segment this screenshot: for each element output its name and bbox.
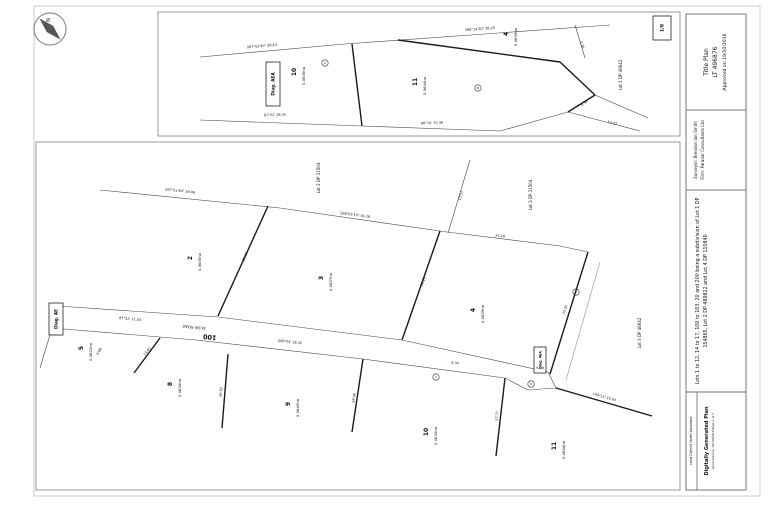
- lot-number: 4: [503, 32, 510, 36]
- title-block-border: [686, 14, 746, 490]
- bearing-label: 38.06: [351, 393, 356, 403]
- boundary-line: [58, 306, 218, 317]
- diagram-ref-label: Diag. AEA: [271, 72, 276, 96]
- boundary-line: [550, 252, 588, 374]
- lot-area: 0.0600ha: [301, 67, 306, 85]
- bearing-label: 13.57: [607, 120, 617, 126]
- boundary-line: [568, 112, 640, 131]
- lot-number: 3: [318, 276, 325, 280]
- bearing-label: 8.34: [451, 361, 459, 366]
- lot-number: 9: [285, 402, 292, 406]
- boundary-line: [134, 338, 160, 373]
- lot-area: 0.0601ha: [88, 343, 93, 361]
- bearing-label: 268°05' 26.35: [278, 339, 302, 346]
- boundary-line: [500, 112, 568, 131]
- bearing-label: 25.35: [562, 304, 569, 314]
- title-plan-page: N Title Plan LT 496876 Approved on 19/10…: [0, 0, 768, 512]
- boundary-line: [528, 388, 556, 390]
- plan-canvas: Title Plan LT 496876 Approved on 19/10/2…: [0, 0, 768, 512]
- sheet-border: [34, 6, 760, 496]
- lot-area: 0.0644ha: [422, 77, 427, 95]
- lot-area: 0.0609ha: [480, 305, 485, 323]
- boundary-line: [363, 359, 505, 378]
- lot-number: 4: [470, 308, 477, 312]
- boundary-line: [566, 262, 600, 380]
- adjoining-lot-label: Lot 2 DP 31504: [316, 162, 321, 193]
- adjoining-lot-label: Lot 1 DP 46642: [618, 59, 623, 90]
- bearing-label: 267°52'40" 26.06: [165, 187, 195, 194]
- adjoining-lot-label: Lot 3 DP 31504: [528, 179, 533, 210]
- lot-area: 0.0605ha: [197, 253, 202, 271]
- bearing-label: 140°12' 23.03: [592, 392, 616, 403]
- bearing-label: 267°52'40" 28.43: [247, 43, 277, 50]
- boundary-line: [556, 388, 652, 416]
- road-lot-number: 100: [202, 332, 217, 341]
- lot-number: 5: [78, 346, 85, 350]
- title-plan-label: Title Plan: [703, 48, 710, 77]
- north-label: N: [46, 18, 52, 22]
- north-compass-icon: N: [31, 10, 69, 48]
- boundary-line: [52, 328, 196, 340]
- lot-number: 8: [167, 382, 174, 386]
- lot-area: 0.0644ha: [561, 441, 566, 459]
- lot-number: 10: [423, 428, 430, 436]
- lot-area: 0.0607ha: [328, 273, 333, 291]
- lot-number: 11: [412, 78, 419, 86]
- lot-area: 0.0634ha: [177, 379, 182, 397]
- boundary-line: [560, 62, 595, 95]
- lot-number: 10: [291, 68, 298, 76]
- boundary-line: [200, 120, 362, 126]
- lot-number: 11: [551, 442, 558, 450]
- bearing-label: 40.93: [219, 387, 224, 397]
- boundary-line: [548, 372, 556, 388]
- boundary-line: [362, 126, 500, 131]
- surveyor-firm: Firm: Paradar Consultants Ltd: [700, 120, 705, 180]
- bearing-label: 88°14' 33.36: [421, 121, 443, 126]
- survey-mark-label: B: [477, 86, 479, 90]
- generated-plan-sub: Generated on 19/10/2016 Page 1 of 1: [711, 413, 715, 470]
- lot-area: 0.0630ha: [433, 427, 438, 445]
- adjoining-lot-label: Lot 3 DP 46642: [637, 317, 642, 348]
- bearing-label: 268°05'10" 34.26: [340, 211, 370, 219]
- survey-mark-label: A: [324, 61, 326, 65]
- bearing-label: 3.26: [579, 40, 585, 48]
- bearing-label: 87°52' 21.03: [119, 316, 141, 322]
- bearing-label: 13.57: [458, 190, 465, 200]
- lot-area: 0.0640ha: [295, 399, 300, 417]
- description-line-1: Lots 1 to 12, 14 to 17, 100 to 103, 20 a…: [695, 197, 701, 384]
- top-diagram-border: [158, 12, 680, 136]
- bearing-label: 26.35: [241, 251, 249, 262]
- diagram-ref-label: Diag. AE: [54, 309, 59, 329]
- boundary-line: [398, 40, 560, 62]
- bearing-label: 26.10: [419, 276, 426, 287]
- survey-mark-label: D: [530, 382, 532, 386]
- approved-date: Approved on 19/10/2016: [722, 33, 728, 90]
- road-name: ELSIE ROAD: [182, 324, 205, 331]
- boundary-line: [595, 95, 648, 118]
- plan-number: LT 496876: [712, 46, 719, 77]
- bearing-label: 6.39: [536, 366, 544, 371]
- bearing-label: 268°14'20" 36.25: [465, 26, 495, 32]
- boundary-line: [560, 246, 588, 252]
- main-diagram-border: [36, 142, 680, 490]
- land-district: Land District North Auckland: [689, 417, 693, 466]
- bearing-label: 37.77: [495, 411, 500, 421]
- boundary-line: [280, 208, 447, 232]
- survey-mark-label: C: [435, 375, 437, 379]
- title-block: Title Plan LT 496876 Approved on 19/10/2…: [689, 33, 728, 475]
- boundary-line: [352, 44, 362, 126]
- bearing-label: 87°52' 26.35: [264, 113, 286, 118]
- boundary-line: [218, 317, 402, 340]
- description-line-2: 154865, Lot 2 DP 489822 and Lot 4 DP 110…: [703, 234, 709, 347]
- bearing-label: 25.29: [495, 234, 505, 239]
- lot-area: 0.0609ha: [513, 28, 518, 46]
- survey-mark-label: E: [575, 290, 577, 294]
- lot-number: 2: [187, 256, 194, 260]
- surveyor-name: Surveyor: Brendon Ian Smith: [693, 121, 698, 179]
- diagram-ref-label: 1/8: [660, 24, 666, 32]
- bearing-label: 4.08: [96, 347, 103, 356]
- generated-plan-label: Digitally Generated Plan: [704, 406, 710, 475]
- boundary-line: [505, 378, 528, 390]
